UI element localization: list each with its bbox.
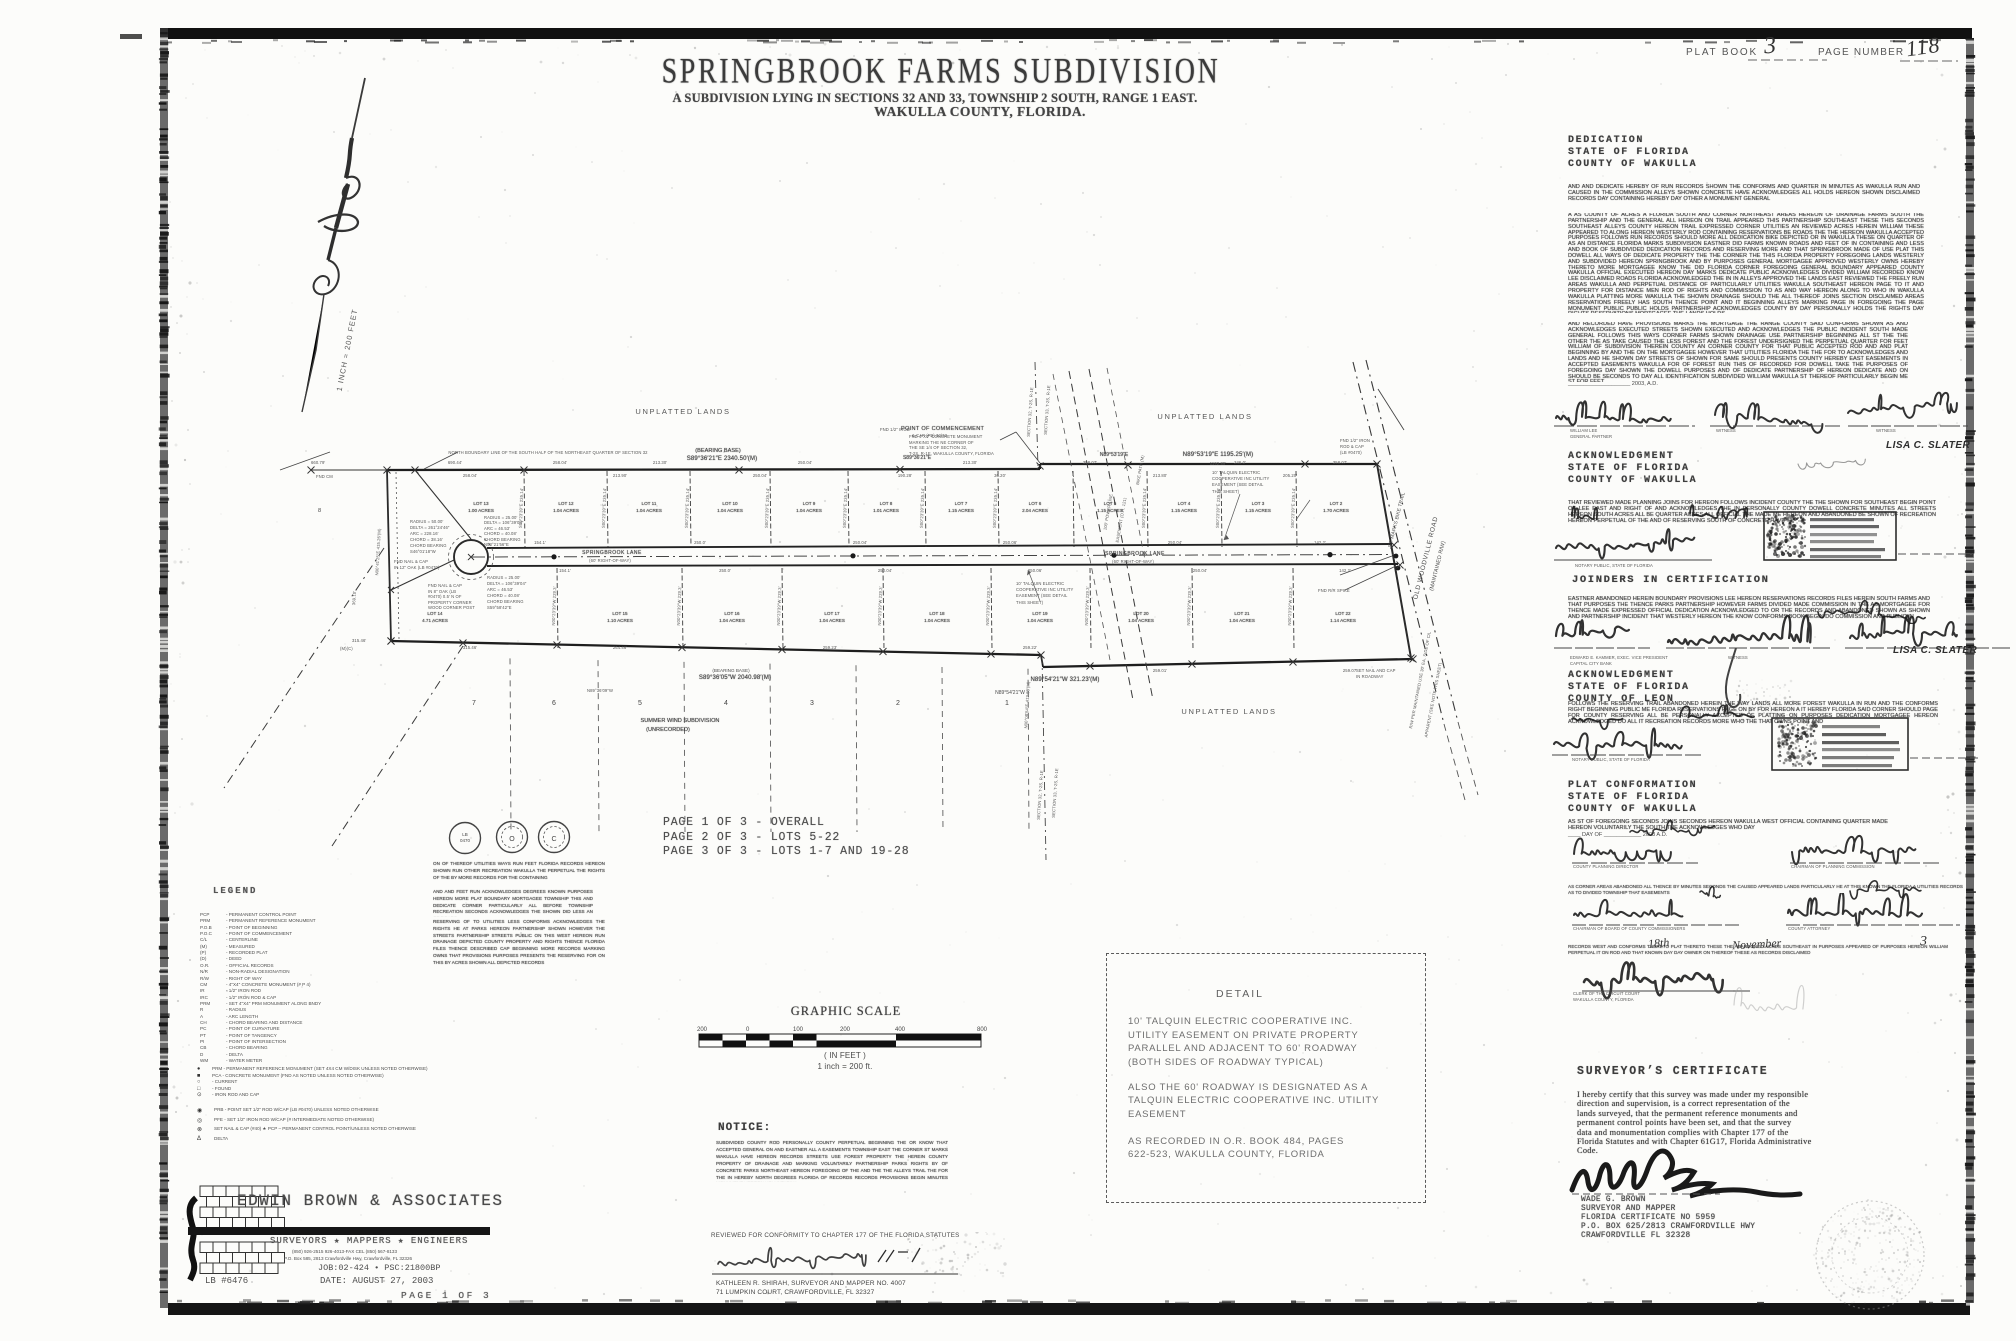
svg-text:200: 200 — [840, 1027, 851, 1033]
svg-text:LB: LB — [462, 832, 468, 837]
svg-text:200: 200 — [697, 1027, 708, 1033]
svg-text:O: O — [509, 836, 515, 843]
svg-text:C: C — [551, 836, 556, 843]
svg-text:100: 100 — [793, 1027, 804, 1033]
svg-text:0470: 0470 — [460, 838, 471, 843]
svg-text:0: 0 — [746, 1027, 750, 1033]
svg-text:800: 800 — [977, 1027, 988, 1033]
svg-text:400: 400 — [895, 1027, 906, 1033]
